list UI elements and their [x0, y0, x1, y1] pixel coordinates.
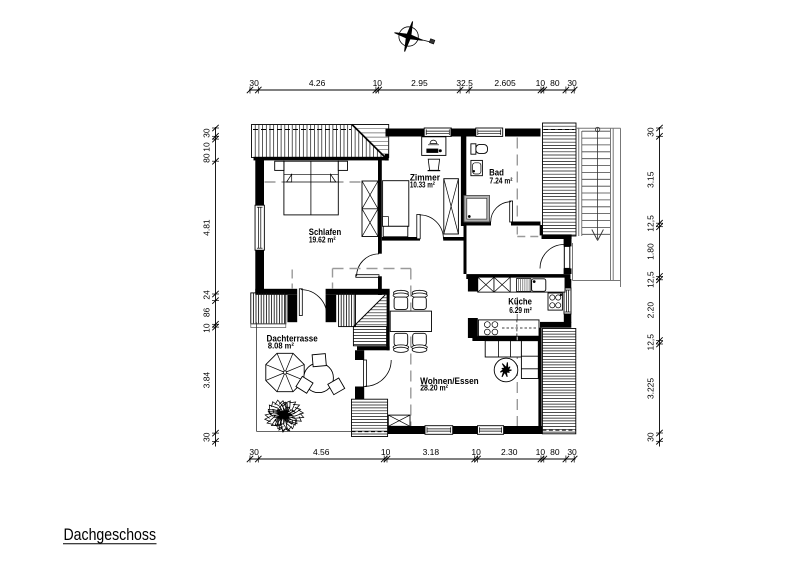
svg-text:10.33 m²: 10.33 m² [410, 180, 435, 189]
svg-text:8.08 m²: 8.08 m² [268, 342, 294, 351]
svg-text:32.5: 32.5 [456, 78, 473, 88]
svg-text:30: 30 [202, 128, 212, 138]
svg-text:2.20: 2.20 [646, 302, 656, 319]
svg-text:24: 24 [202, 290, 212, 300]
svg-text:4.56: 4.56 [313, 447, 330, 457]
svg-text:3.15: 3.15 [646, 171, 656, 188]
svg-text:10: 10 [373, 78, 383, 88]
svg-text:4.81: 4.81 [202, 219, 212, 236]
svg-text:28.20 m²: 28.20 m² [420, 384, 448, 393]
svg-text:2.30: 2.30 [501, 447, 518, 457]
svg-text:7.24 m²: 7.24 m² [490, 176, 513, 185]
svg-text:80: 80 [550, 78, 560, 88]
svg-text:19.62 m²: 19.62 m² [309, 236, 336, 245]
svg-text:10: 10 [381, 447, 391, 457]
svg-text:10: 10 [202, 142, 212, 152]
svg-text:30: 30 [567, 78, 577, 88]
svg-text:10: 10 [202, 323, 212, 333]
svg-text:10: 10 [471, 447, 481, 457]
svg-text:30: 30 [249, 78, 259, 88]
svg-text:30: 30 [202, 432, 212, 442]
svg-text:3.225: 3.225 [646, 378, 656, 400]
svg-text:30: 30 [567, 447, 577, 457]
svg-text:80: 80 [550, 447, 560, 457]
svg-text:2.605: 2.605 [494, 78, 516, 88]
svg-text:30: 30 [646, 432, 656, 442]
svg-text:1.80: 1.80 [646, 243, 656, 260]
svg-text:86: 86 [202, 307, 212, 317]
svg-text:10: 10 [536, 447, 546, 457]
svg-text:4.26: 4.26 [309, 78, 326, 88]
svg-text:80: 80 [202, 153, 212, 163]
svg-text:2.95: 2.95 [411, 78, 428, 88]
svg-text:12,5: 12,5 [646, 334, 656, 351]
svg-text:30: 30 [249, 447, 259, 457]
svg-text:3.84: 3.84 [202, 372, 212, 389]
svg-text:12,5: 12,5 [646, 271, 656, 288]
svg-text:3.18: 3.18 [423, 447, 440, 457]
svg-text:30: 30 [646, 127, 656, 137]
svg-text:6.29 m²: 6.29 m² [509, 306, 532, 315]
svg-text:12,5: 12,5 [646, 215, 656, 232]
svg-text:Dachgeschoss: Dachgeschoss [64, 525, 157, 544]
svg-text:10: 10 [536, 78, 546, 88]
